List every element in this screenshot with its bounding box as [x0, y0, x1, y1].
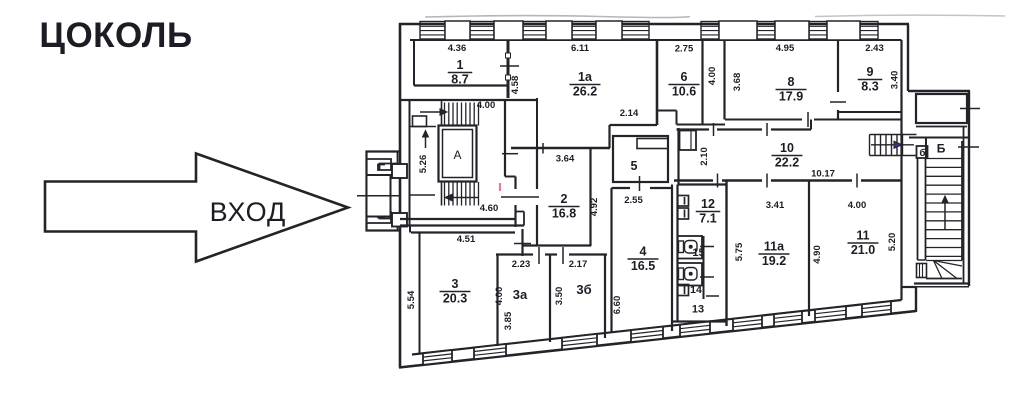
svg-text:16.8: 16.8	[552, 207, 576, 221]
svg-text:4.00: 4.00	[494, 287, 505, 306]
svg-text:4.92: 4.92	[589, 198, 600, 217]
svg-text:2.17: 2.17	[569, 259, 588, 270]
svg-text:6.60: 6.60	[612, 296, 623, 315]
svg-text:4.00: 4.00	[477, 100, 496, 111]
svg-text:21.0: 21.0	[851, 243, 875, 257]
svg-text:14: 14	[690, 284, 702, 296]
svg-text:22.2: 22.2	[775, 156, 799, 170]
svg-text:26.2: 26.2	[573, 85, 597, 99]
svg-text:1: 1	[457, 58, 464, 72]
svg-text:4.95: 4.95	[776, 43, 795, 54]
svg-text:б: б	[919, 147, 925, 159]
svg-text:4.00: 4.00	[707, 67, 718, 86]
svg-text:16.5: 16.5	[631, 259, 655, 273]
svg-text:10.17: 10.17	[811, 169, 835, 180]
svg-text:2.75: 2.75	[675, 44, 694, 55]
svg-text:ЦОКОЛЬ: ЦОКОЛЬ	[39, 16, 192, 55]
svg-text:13: 13	[692, 304, 704, 316]
svg-text:4.51: 4.51	[457, 234, 476, 245]
svg-text:4.58: 4.58	[510, 76, 521, 95]
svg-text:8.3: 8.3	[861, 80, 878, 94]
svg-text:5.26: 5.26	[418, 155, 429, 174]
svg-text:5.20: 5.20	[887, 233, 898, 252]
svg-text:5: 5	[631, 159, 638, 173]
svg-text:3: 3	[452, 277, 459, 291]
svg-text:8.7: 8.7	[451, 73, 468, 87]
svg-text:2.43: 2.43	[865, 43, 884, 54]
svg-text:3а: 3а	[513, 287, 528, 302]
svg-text:7.1: 7.1	[699, 212, 716, 226]
svg-text:4.00: 4.00	[848, 200, 867, 211]
svg-text:4.60: 4.60	[480, 203, 499, 214]
svg-text:4: 4	[640, 245, 647, 259]
svg-text:5.75: 5.75	[734, 242, 745, 261]
svg-text:19.2: 19.2	[762, 254, 786, 268]
svg-text:3.68: 3.68	[732, 73, 743, 92]
svg-text:Б: Б	[937, 142, 946, 156]
svg-text:ВХОД: ВХОД	[210, 197, 287, 227]
svg-text:3.41: 3.41	[766, 200, 785, 211]
svg-text:6.11: 6.11	[571, 43, 590, 54]
svg-text:6: 6	[681, 70, 688, 84]
svg-text:2.23: 2.23	[512, 259, 531, 270]
svg-text:10: 10	[780, 141, 794, 155]
svg-text:3.85: 3.85	[503, 311, 514, 330]
svg-text:20.3: 20.3	[443, 292, 467, 306]
svg-text:3.50: 3.50	[554, 287, 565, 306]
svg-text:А: А	[453, 148, 461, 162]
svg-text:5.54: 5.54	[406, 290, 417, 309]
svg-text:2.10: 2.10	[699, 147, 710, 166]
svg-text:8: 8	[788, 75, 795, 89]
svg-text:2.55: 2.55	[624, 195, 643, 206]
svg-text:11: 11	[856, 229, 869, 243]
svg-text:9: 9	[867, 65, 874, 79]
svg-text:3.40: 3.40	[890, 71, 901, 90]
svg-text:3.64: 3.64	[556, 154, 575, 165]
svg-text:4.36: 4.36	[448, 43, 467, 54]
svg-text:11а: 11а	[764, 240, 785, 254]
svg-text:10.6: 10.6	[672, 85, 696, 99]
svg-text:3б: 3б	[576, 282, 591, 297]
svg-text:2: 2	[561, 192, 568, 206]
svg-text:12: 12	[701, 197, 715, 211]
svg-text:4.90: 4.90	[812, 245, 823, 264]
svg-text:1а: 1а	[578, 70, 593, 84]
svg-text:2.14: 2.14	[620, 108, 639, 119]
svg-text:17.9: 17.9	[779, 90, 803, 104]
